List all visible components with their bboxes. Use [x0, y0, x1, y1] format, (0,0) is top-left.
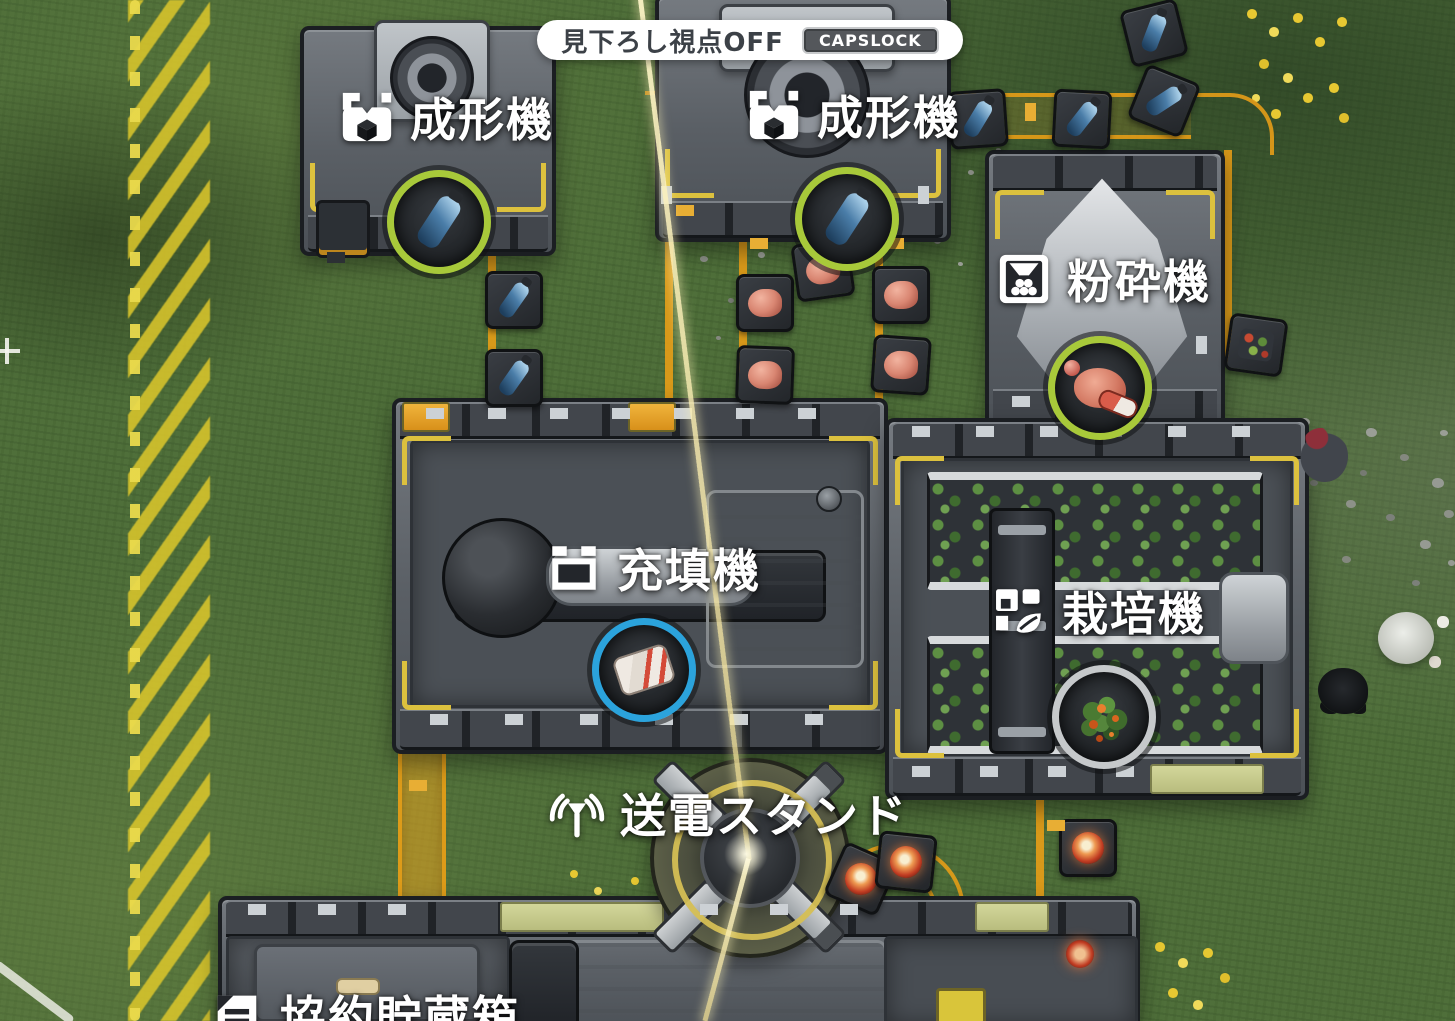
conveyor-arrow-icon: [550, 408, 568, 419]
machine-label-text: 充填機: [617, 535, 761, 601]
conveyor-arrow-icon: [580, 714, 598, 725]
conveyor-arrow-icon: [1047, 820, 1065, 831]
rock-pebble: [1366, 428, 1377, 437]
seed-mix-item-icon: [1237, 328, 1275, 362]
belt-tray-meat-chunk[interactable]: [735, 345, 795, 405]
belt-tray-water-bottle[interactable]: [485, 271, 543, 329]
water-bottle-item-icon: [1144, 84, 1185, 118]
capsule-item-icon: [1096, 387, 1141, 421]
rock-pebble: [968, 170, 974, 175]
conveyor-arrow-icon: [736, 408, 754, 419]
berry-plant-item-icon: [1075, 690, 1133, 744]
game-viewport: 成形機 成形機 粉砕機 充填機: [0, 0, 1455, 1021]
accent-corner: [1250, 709, 1299, 758]
belt-tray-seed-mix[interactable]: [1223, 312, 1289, 378]
rock-pebble: [700, 256, 708, 262]
machine-label-text: 粉砕機: [1067, 246, 1211, 312]
white-creature[interactable]: [1378, 612, 1434, 664]
zone-hazard-stripes: [128, 0, 210, 1021]
accent-corner: [995, 190, 1044, 239]
accent-corner: [402, 661, 451, 710]
conveyor-arrow-icon: [248, 904, 266, 915]
meat-chunk-item-icon: [883, 350, 919, 380]
rock-pebble: [1432, 478, 1444, 488]
label-molding-machine-2: 成形機: [745, 82, 961, 148]
conveyor-arrow-icon: [1232, 426, 1250, 437]
meat-chunk-item-icon: [748, 360, 783, 389]
conveyor-arrow-icon: [1012, 396, 1030, 407]
rock-pebble: [1448, 560, 1455, 566]
conveyor-arrow-icon: [700, 904, 718, 915]
output-marker-cultivator: [1052, 665, 1156, 769]
cultivator-side-unit: [1219, 572, 1289, 664]
belt-tray-water-bottle[interactable]: [1052, 89, 1113, 150]
antenna-icon: [548, 784, 606, 842]
grid-plus-marker: [0, 338, 20, 364]
rock-pebble: [1360, 470, 1367, 476]
meat-chunk-item-icon: [748, 289, 782, 317]
water-bottle-item-icon: [1064, 99, 1100, 139]
rock-pebble: [716, 336, 721, 340]
conveyor-arrow-icon: [676, 205, 694, 216]
powder-orb-icon: [1064, 360, 1080, 376]
water-bottle-item-icon: [961, 99, 994, 140]
conveyor-arrow-icon: [770, 904, 788, 915]
conveyor-arrow-icon: [980, 766, 998, 777]
conveyor-arrow-icon: [976, 426, 994, 437]
planting-bed: [927, 472, 1263, 590]
accent-corner: [1166, 190, 1215, 239]
belt-tray-meat-chunk[interactable]: [872, 266, 930, 324]
filler-drum: [442, 518, 562, 638]
conveyor-arrow-icon: [840, 904, 858, 915]
conveyor-arrow-icon: [1196, 336, 1207, 354]
accent-corner: [497, 163, 546, 212]
conveyor-arrow-icon: [488, 408, 506, 419]
output-marker-crusher: [1048, 336, 1152, 440]
molder-icon: [338, 88, 396, 146]
conveyor-arrow-icon: [1025, 103, 1036, 121]
water-bottle-item-icon: [414, 193, 464, 251]
red-lamp-fruit-item-icon: [888, 844, 923, 879]
output-marker-filler: [592, 618, 696, 722]
water-bottle-item-icon: [497, 280, 532, 320]
accent-corner: [895, 709, 944, 758]
conveyor-arrow-icon: [912, 766, 930, 777]
conveyor-arrow-icon: [409, 780, 427, 791]
corner-structure-edge: [0, 960, 75, 1021]
conveyor-arrow-icon: [612, 408, 630, 419]
machine-label-text: 成形機: [817, 82, 961, 148]
rock-pebble: [1412, 580, 1420, 586]
conveyor-arrow-icon: [1116, 766, 1134, 777]
storage-icon: [208, 986, 266, 1021]
conveyor-arrow-icon: [805, 714, 823, 725]
machine-label-text: 成形機: [410, 84, 554, 150]
conveyor-arrow-icon: [750, 238, 768, 249]
conveyor-corner[interactable]: [1186, 93, 1274, 155]
conveyor-arrow-icon: [1168, 426, 1186, 437]
rock-pebble: [1346, 500, 1356, 508]
molder-icon: [745, 86, 803, 144]
conveyor-arrow-icon: [388, 904, 406, 915]
crusher-icon: [995, 250, 1053, 308]
flower-clusters: [0, 0, 4, 4]
cultivator-icon: [990, 582, 1048, 640]
label-molding-machine-1: 成形機: [338, 84, 554, 150]
accent-corner: [829, 661, 878, 710]
rock-pebble: [728, 298, 734, 303]
output-marker-molder-1: [387, 170, 491, 274]
small-creature[interactable]: [1300, 428, 1348, 482]
capslock-keycap: CAPSLOCK: [802, 27, 939, 54]
conveyor-arrow-icon: [430, 714, 448, 725]
rock-pebble: [1342, 556, 1351, 563]
label-cultivator: 栽培機: [990, 578, 1206, 644]
conveyor-arrow-icon: [912, 426, 930, 437]
zone-boundary-dots: [130, 0, 140, 1021]
rock-pebble: [1444, 510, 1454, 518]
accent-corner: [665, 149, 714, 198]
meat-chunk-item-icon: [884, 281, 918, 309]
machine-label-text: 栽培機: [1062, 578, 1206, 644]
conveyor-arrow-icon: [426, 408, 444, 419]
label-power-stand: 送電スタンド: [548, 780, 908, 846]
water-bottle-item-icon: [822, 190, 872, 248]
conveyor-arrow-icon: [798, 408, 816, 419]
belt-tray-meat-chunk[interactable]: [870, 334, 932, 396]
label-filling-machine: 充填機: [545, 535, 761, 601]
hazard-plate: [936, 988, 986, 1021]
machine-bay: [884, 936, 1138, 1021]
black-creature[interactable]: [1318, 668, 1368, 714]
rock-pebble: [1440, 430, 1448, 436]
rock-pebble: [1420, 540, 1431, 549]
belt-tray-water-bottle[interactable]: [1119, 0, 1189, 68]
molder-output-spout: [316, 200, 370, 258]
view-mode-text: 見下ろし視点OFF: [561, 22, 784, 59]
belt-tray-red-lamp-fruit[interactable]: [1059, 819, 1117, 877]
label-contract-storage: 協約貯蔵箱: [208, 982, 520, 1021]
port-cell-active: [628, 402, 676, 432]
conveyor-arrow-icon: [318, 904, 336, 915]
rock-pebble: [1400, 454, 1409, 461]
conveyor-belt[interactable]: [1036, 790, 1044, 902]
accent-corner: [892, 149, 941, 198]
conveyor-arrow-icon: [327, 252, 345, 263]
red-lamp: [1066, 940, 1094, 968]
conveyor-arrow-icon: [918, 186, 929, 204]
port-cell: [500, 902, 664, 932]
ration-pack-item-icon: [611, 642, 677, 697]
accent-corner: [895, 456, 944, 505]
filler-icon: [545, 539, 603, 597]
belt-tray-water-bottle[interactable]: [485, 349, 543, 407]
conveyor-arrow-icon: [505, 714, 523, 725]
view-mode-banner: 見下ろし視点OFF CAPSLOCK: [537, 20, 963, 60]
accent-corner: [1250, 456, 1299, 505]
rock-pebble: [758, 252, 765, 258]
port-cell: [975, 902, 1049, 932]
water-bottle-item-icon: [497, 358, 532, 398]
rock-pebble: [958, 262, 963, 266]
accent-corner: [829, 436, 878, 485]
machine-label-text: 送電スタンド: [620, 780, 908, 846]
port-cell: [1150, 764, 1264, 794]
water-bottle-item-icon: [1140, 12, 1169, 53]
accent-corner: [402, 436, 451, 485]
red-lamp-fruit-item-icon: [1072, 832, 1104, 864]
output-marker-molder-2: [795, 167, 899, 271]
red-powder-item-icon: [1074, 368, 1126, 408]
belt-tray-meat-chunk[interactable]: [736, 274, 794, 332]
bolt: [816, 486, 842, 512]
machine-label-text: 協約貯蔵箱: [280, 982, 520, 1021]
conveyor-arrow-icon: [1048, 766, 1066, 777]
label-crusher: 粉砕機: [995, 246, 1211, 312]
rock-pebble: [1386, 514, 1395, 521]
conveyor-arrow-icon: [1040, 426, 1058, 437]
